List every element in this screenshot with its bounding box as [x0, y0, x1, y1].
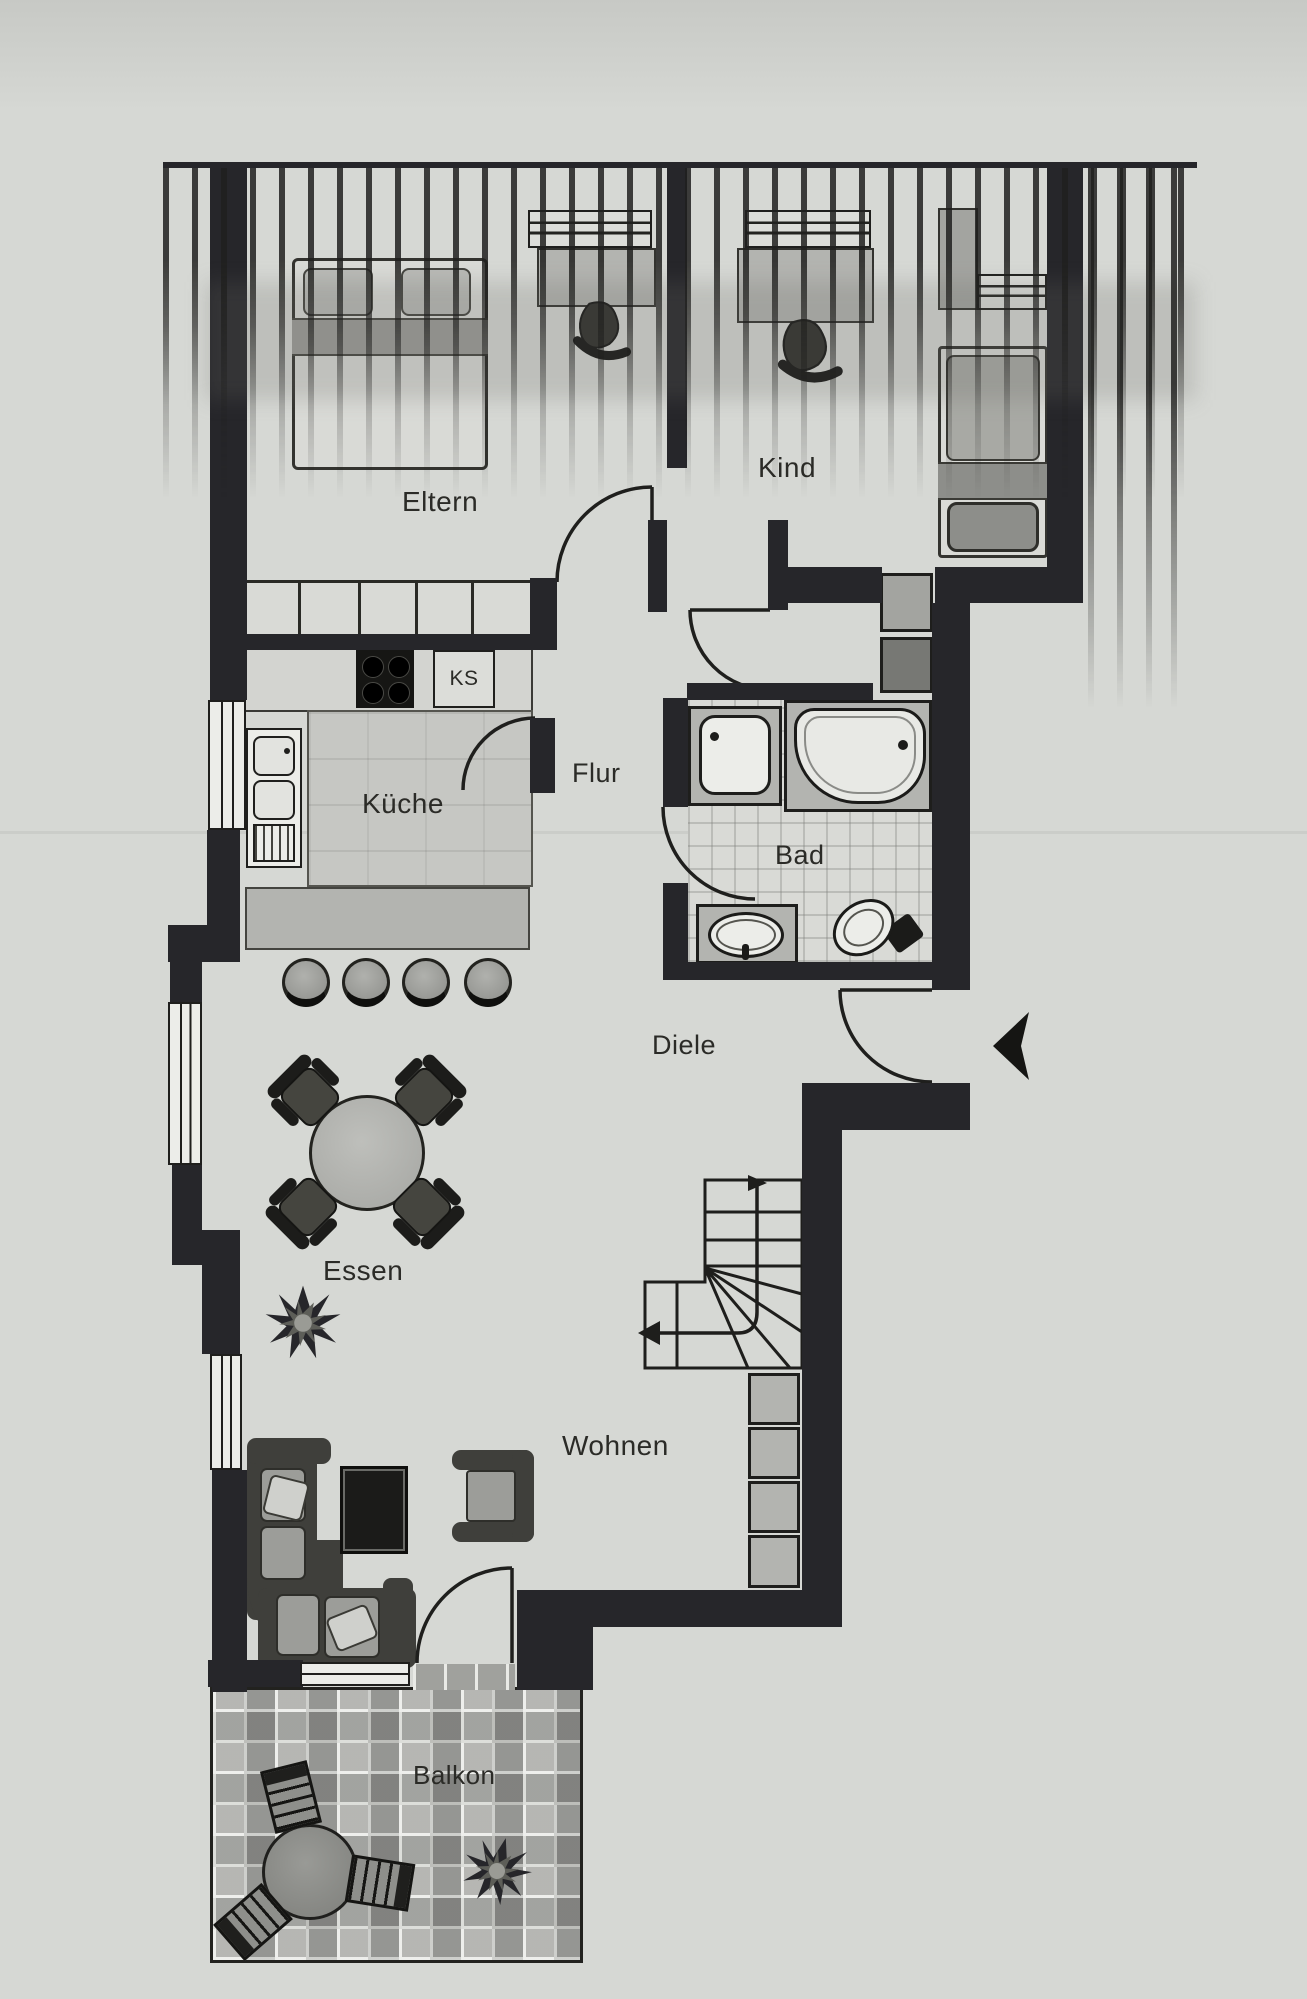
- room-label-essen: Essen: [323, 1255, 403, 1287]
- entrance-door-arc: [840, 990, 932, 1082]
- shower-drain: [710, 732, 719, 741]
- stove-burner: [362, 656, 384, 678]
- sink-drainer: [253, 824, 295, 862]
- closet-divider: [298, 583, 301, 637]
- balcony-tile-patch: [413, 1664, 515, 1690]
- sofa-armrest-end: [383, 1578, 413, 1668]
- stair-winders: [705, 1268, 802, 1368]
- sink-drain-dot: [284, 748, 290, 754]
- window-kitchen: [208, 700, 246, 830]
- wall-under-closet: [243, 634, 557, 650]
- wall-wohnen-bottom-right: [585, 1590, 840, 1627]
- bathtub-faucet-dot: [898, 740, 908, 750]
- kind-bad-closet-upper: [880, 573, 933, 632]
- kind-bed-blanket: [938, 462, 1048, 500]
- room-label-wohnen: Wohnen: [562, 1430, 669, 1462]
- room-label-diele: Diele: [652, 1030, 716, 1061]
- stair-arrow-up: [748, 1175, 767, 1191]
- window-glass-lines: [212, 1356, 240, 1468]
- essen-plant-icon: [266, 1286, 341, 1359]
- wall-shelf-cell: [748, 1535, 800, 1588]
- wall-bad-top: [687, 683, 873, 700]
- window-essen: [168, 1002, 202, 1165]
- wall-kind-bottom-left: [788, 567, 882, 603]
- floorplan-scan: KS: [0, 0, 1307, 1999]
- sofa-cushion: [260, 1526, 306, 1580]
- kind-dresser: [977, 274, 1047, 310]
- room-label-balkon: Balkon: [413, 1760, 496, 1791]
- wall-kind-door-stub: [768, 520, 788, 610]
- wall-eltern-door-corner: [530, 578, 557, 648]
- wall-bad-right: [932, 603, 970, 990]
- eltern-shelf: [528, 210, 652, 248]
- washbasin-faucet: [742, 944, 749, 960]
- eltern-desk-chair: [576, 300, 631, 357]
- bar-stool: [342, 958, 390, 1007]
- sink-basin-lower: [253, 780, 295, 820]
- wall-left-upper: [210, 168, 247, 700]
- wall-bad-bottom: [663, 962, 937, 980]
- wall-entrance-corner: [802, 1083, 970, 1130]
- room-label-bad: Bad: [775, 840, 825, 871]
- eltern-door-arc: [557, 487, 652, 582]
- kitchen-fridge: KS: [433, 650, 495, 708]
- window-wohnen: [210, 1354, 242, 1470]
- staircase: [645, 1180, 802, 1368]
- eltern-closet-row: [243, 580, 530, 634]
- stair-treads: [677, 1212, 802, 1368]
- kind-wardrobe: [938, 208, 978, 310]
- bar-stool: [402, 958, 450, 1007]
- room-label-kind: Kind: [758, 452, 816, 484]
- bar-stool: [282, 958, 330, 1007]
- wall-wohnen-right: [802, 1130, 842, 1627]
- wall-eltern-kind: [667, 168, 687, 468]
- wall-balcony-step: [517, 1590, 593, 1690]
- kind-bed-mattress: [946, 355, 1040, 461]
- stair-outline: [645, 1180, 802, 1368]
- window-glass-lines: [210, 702, 244, 828]
- wall-kueche-right: [530, 718, 555, 793]
- room-label-eltern: Eltern: [402, 486, 478, 518]
- eltern-pillow-left: [303, 268, 373, 316]
- wall-flur-kind: [648, 520, 667, 612]
- closet-divider: [471, 583, 474, 637]
- stair-walk-line: [656, 1184, 757, 1333]
- shelf-lines: [530, 212, 650, 246]
- kitchen-bar-counter: [245, 887, 530, 950]
- kind-bed-foot-cushion: [947, 502, 1039, 552]
- kitchen-sink-unit: [246, 728, 302, 868]
- eltern-blanket: [292, 318, 488, 356]
- coffee-table: [340, 1466, 408, 1554]
- wall-shelf-cell: [748, 1373, 800, 1425]
- kind-door-arc: [690, 610, 770, 690]
- stove-burner: [362, 682, 384, 704]
- wall-left-mid: [207, 830, 240, 927]
- room-label-flur: Flur: [572, 758, 621, 789]
- sofa-cushion: [276, 1594, 320, 1656]
- entrance-arrow-icon: [993, 1012, 1029, 1080]
- stove-burner: [388, 682, 410, 704]
- balcony-window-sill: [300, 1662, 410, 1686]
- balcony-chair: [345, 1854, 416, 1911]
- closet-divider: [415, 583, 418, 637]
- chair-backrest: [394, 1865, 412, 1908]
- kind-desk: [737, 248, 874, 323]
- kind-shelf: [745, 210, 871, 248]
- shelf-lines: [979, 276, 1045, 308]
- eltern-desk: [537, 248, 656, 307]
- wall-kind-right: [1047, 168, 1083, 603]
- wall-left-essen-upper: [170, 962, 202, 1004]
- window-glass-lines: [170, 1004, 200, 1163]
- bar-stool: [464, 958, 512, 1007]
- wall-left-lower: [212, 1470, 247, 1692]
- shelf-lines: [747, 212, 869, 246]
- wall-shelf-cell: [748, 1481, 800, 1533]
- kind-desk-chair: [783, 320, 838, 377]
- armchair: [452, 1450, 534, 1542]
- sill-line: [302, 1664, 408, 1684]
- wall-wohnen-bottom-left: [208, 1660, 303, 1687]
- wall-left-step: [168, 925, 240, 962]
- eltern-pillow-right: [401, 268, 471, 316]
- closet-divider: [358, 583, 361, 637]
- armchair-seat: [466, 1470, 516, 1522]
- scan-top-band: [0, 0, 1307, 112]
- stair-arrow-down: [638, 1321, 660, 1345]
- roof-hatching-right: [1085, 168, 1197, 708]
- kind-bad-closet-lower: [880, 637, 933, 693]
- shower-tray: [699, 715, 771, 795]
- sink-basin-upper: [253, 736, 295, 776]
- kitchen-stove: [356, 650, 414, 708]
- wall-shelf-cell: [748, 1427, 800, 1479]
- sofa-armrest-top: [247, 1438, 331, 1464]
- room-label-kueche: Küche: [362, 788, 444, 820]
- stove-burner: [388, 656, 410, 678]
- scan-fold-line: [0, 831, 1307, 834]
- fridge-label: KS: [449, 667, 478, 691]
- wall-bad-left-upper: [663, 698, 688, 807]
- balcony-door-arc: [417, 1568, 512, 1663]
- wall-left-stepback: [202, 1230, 240, 1354]
- wall-left-essen-lower: [172, 1165, 202, 1265]
